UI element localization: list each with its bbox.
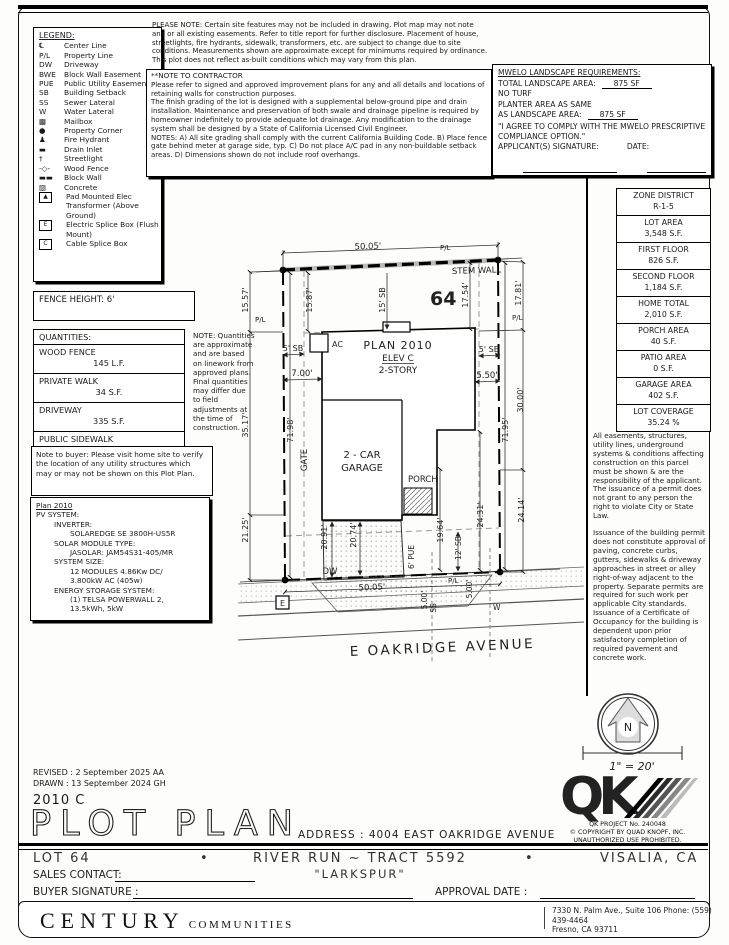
legend-title: LEGEND: <box>39 31 159 40</box>
contractor-note-box: **NOTE TO CONTRACTOR Please refer to sig… <box>146 69 492 177</box>
zone-table-row: LOT COVERAGE35.24 % <box>617 405 710 431</box>
mwelo-signature-label: APPLICANT(S) SIGNATURE: <box>498 142 599 153</box>
dim-top-width: 50.05' <box>354 242 381 253</box>
dim-5-50: 5.50' <box>476 371 497 381</box>
pv-line: 3.800kW AC (405w) <box>36 576 204 585</box>
pv-line: JASOLAR: JAM54S31-405/MR <box>36 548 204 557</box>
contractor-note-p2: The finish grading of the lot is designe… <box>151 98 487 133</box>
qk-copyright: © COPYRIGHT BY QUAD KNOPF, INC. <box>545 829 710 837</box>
mwelo-signature-lines <box>498 162 706 173</box>
dim-5-sb-left: 5' SB <box>283 344 303 353</box>
legend-item: ▬Drain Inlet <box>39 145 159 154</box>
plan-story: 2-STORY <box>379 366 418 376</box>
garage-label-1: 2 - CAR <box>343 450 380 461</box>
pv-line: 12 MODULES 4.86Kw DC/ <box>36 567 204 576</box>
right-property-line <box>498 260 500 572</box>
dim-71-98: 71.98' <box>286 417 295 442</box>
legend-item: -◇-Wood Fence <box>39 164 159 173</box>
dim-5-00-a: 5.00' <box>420 591 429 610</box>
mwelo-total-value: 875 SF <box>602 79 652 89</box>
approval-date-label: APPROVAL DATE : <box>435 886 527 898</box>
dim-17-54: 17.54' <box>461 282 470 307</box>
mwelo-signature-row: APPLICANT(S) SIGNATURE: DATE: <box>498 142 706 153</box>
legend-item: EElectric Splice Box (Flush Mount) <box>39 220 159 239</box>
mwelo-date-label: DATE: <box>627 142 649 153</box>
please-note: PLEASE NOTE: Certain site features may n… <box>152 21 488 65</box>
ac-label: AC <box>332 340 343 349</box>
pl-label-left: P/L <box>255 316 266 324</box>
footer-divider <box>544 907 545 929</box>
bullet-separator: • <box>200 851 210 866</box>
left-property-line <box>283 270 285 580</box>
pl-label-right: P/L <box>512 314 523 322</box>
pv-line: (1) TELSA POWERWALL 2, <box>36 595 204 604</box>
sales-contact-label: SALES CONTACT: <box>33 869 122 881</box>
revised-line: REVISED : 2 September 2025 AA <box>33 768 166 779</box>
plan-elev: ELEV C <box>382 354 414 364</box>
model-name: "LARKSPUR" <box>270 867 450 881</box>
garage-label-2: GARAGE <box>341 463 383 474</box>
pl-label-bottom: P/L <box>448 577 459 585</box>
fire-hydrant-icon: ♟ <box>39 135 64 144</box>
sewer-lateral-label: SS <box>429 603 438 613</box>
electric-splice-icon: E <box>39 220 52 231</box>
dim-71-95: 71.95' <box>501 417 510 442</box>
sewer-abbr: SS <box>39 98 64 107</box>
street-and-sidewalk <box>238 567 584 640</box>
city-label: VISALIA, CA <box>600 851 698 866</box>
dim-12-sb: 12' SB <box>454 536 463 560</box>
contractor-note-title: **NOTE TO CONTRACTOR <box>151 72 487 81</box>
pv-line: SYSTEM SIZE: <box>36 557 204 566</box>
mid-rule-thick <box>18 843 708 846</box>
lot-number: 64 <box>430 288 456 310</box>
dim-24-31: 24.31' <box>476 502 485 527</box>
dim-bottom-width: 50.05' <box>358 583 385 594</box>
quantities-row: DRIVEWAY335 S.F. <box>34 403 184 432</box>
porch-slab <box>404 488 432 514</box>
zone-table-row: HOME TOTAL2,010 S.F. <box>617 297 710 324</box>
legend-item: P/LProperty Line <box>39 51 159 60</box>
pue-abbr: PUE <box>39 79 64 88</box>
legend-item: ♟Fire Hydrant <box>39 135 159 144</box>
approval-date-line <box>540 898 695 899</box>
legend-item: ▩Mailbox <box>39 117 159 126</box>
electric-splice-label: E <box>280 599 285 608</box>
quantities-row: PRIVATE WALK34 S.F. <box>34 374 184 403</box>
legend-item: ▲Pad Mounted Elec Transformer (Above Gro… <box>39 192 159 220</box>
dim-7-00: 7.00' <box>291 369 312 379</box>
mwelo-quote: "I AGREE TO COMPLY WITH THE MWELO PRESCR… <box>498 122 706 141</box>
transformer-icon: ▲ <box>39 192 52 203</box>
contractor-note-p1: Please refer to signed and approved impr… <box>151 81 487 99</box>
mailbox-icon: ▩ <box>39 117 64 126</box>
footer-address: 7330 N. Palm Ave., Suite 106 Phone: (559… <box>552 906 729 935</box>
legend-item: ●Property Corner <box>39 126 159 135</box>
buyer-note-box: Note to buyer: Please visit home site to… <box>31 446 213 496</box>
concrete-icon: ▨ <box>39 183 64 192</box>
legend-item: †Streetlight <box>39 154 159 163</box>
pv-line: 13.5kWh, 5kW <box>36 604 204 613</box>
mwelo-planter-row: AS LANDSCAPE AREA:875 SF <box>498 110 706 121</box>
footer-address-line1: 7330 N. Palm Ave., Suite 106 Phone: (559… <box>552 906 729 925</box>
qk-project-number: QK PROJECT No. 240048 <box>545 821 710 829</box>
pl-label-top: P/L <box>440 244 451 252</box>
dim-5-sb-right: 5' SB <box>479 345 499 354</box>
qk-credits: QK PROJECT No. 240048 © COPYRIGHT BY QUA… <box>545 821 710 846</box>
porch-label: PORCH <box>408 475 438 485</box>
mwelo-total-row: TOTAL LANDSCAPE AREA:875 SF <box>498 79 706 90</box>
legend-item: ▨Concrete <box>39 183 159 192</box>
date-line <box>647 162 706 173</box>
century-communities-logo: CENTURY COMMUNITIES <box>40 908 294 934</box>
pv-line: ENERGY STORAGE SYSTEM: <box>36 586 204 595</box>
mid-rule-thin <box>18 849 708 850</box>
dim-20-74: 20.74' <box>349 522 358 547</box>
legend-item: DWDriveway <box>39 60 159 69</box>
quantities-row: WOOD FENCE145 L.F. <box>34 345 184 374</box>
pv-line: INVERTER: <box>36 520 204 529</box>
fence-height-box: FENCE HEIGHT: 6' <box>33 291 195 321</box>
legend-item: BWEBlock Wall Easement <box>39 70 159 79</box>
dim-19-64: 19.64' <box>436 517 445 542</box>
dim-30-00: 30.00' <box>516 387 525 412</box>
dim-5-00-b: 5.00' <box>465 580 474 599</box>
contractor-note-p3: NOTES: A) All site grading shall comply … <box>151 134 487 160</box>
property-line-symbol: P/L <box>39 51 64 60</box>
quantities-title: QUANTITIES: <box>34 330 184 345</box>
footer-address-line2: Fresno, CA 93711 <box>552 925 729 935</box>
dim-15-57: 15.57' <box>241 287 250 312</box>
water-abbr: W <box>39 107 64 116</box>
legend-box: LEGEND: ℄Center Line P/LProperty Line DW… <box>33 27 162 282</box>
qk-logo: QK <box>558 766 698 822</box>
streetlight-icon: † <box>39 154 64 163</box>
street-name: E OAKRIDGE AVENUE <box>349 636 535 660</box>
legend-item: PUEPublic Utility Easement <box>39 79 159 88</box>
top-rule-thick <box>18 5 708 9</box>
zone-table-row: GARAGE AREA402 S.F. <box>617 378 710 405</box>
mwelo-planter-value: 875 SF <box>588 110 638 120</box>
sheet-title: PLOT PLAN <box>30 804 302 844</box>
mwelo-title: MWELO LANDSCAPE REQUIREMENTS: <box>498 68 706 79</box>
centerline-symbol: ℄ <box>39 41 64 50</box>
zone-table-row: SECOND FLOOR1,184 S.F. <box>617 270 710 297</box>
mwelo-no-turf: NO TURF <box>498 89 706 100</box>
legend-item: CCable Splice Box <box>39 239 159 250</box>
dim-20-91: 20.91' <box>320 524 329 549</box>
dim-21-25: 21.25' <box>241 517 250 542</box>
buyer-signature-label: BUYER SIGNATURE : <box>33 886 139 898</box>
block-wall-easement-abbr: BWE <box>39 70 64 79</box>
stem-wall-label: STEM WALL <box>452 265 502 277</box>
legend-item: SSSewer Lateral <box>39 98 159 107</box>
mwelo-box: MWELO LANDSCAPE REQUIREMENTS: TOTAL LAND… <box>492 64 712 176</box>
zone-table-row: PORCH AREA40 S.F. <box>617 324 710 351</box>
dw-label: DW <box>323 567 339 577</box>
driveway-abbr: DW <box>39 60 64 69</box>
property-corner-icon: ● <box>39 126 64 135</box>
drawn-line: DRAWN : 13 September 2024 GH <box>33 779 166 790</box>
legend-item: ℄Center Line <box>39 41 159 50</box>
zone-table-row: FIRST FLOOR826 S.F. <box>617 243 710 270</box>
plan-name: PLAN 2010 <box>363 339 432 352</box>
sales-contact-line <box>115 881 255 882</box>
zone-table-row: LOT AREA3,548 S.F. <box>617 216 710 243</box>
wood-fence-icon: -◇- <box>39 164 64 173</box>
communities-wordmark: COMMUNITIES <box>189 919 294 931</box>
lot-label: LOT 64 <box>33 851 91 866</box>
mwelo-planter-line1: PLANTER AREA AS SAME <box>498 100 706 111</box>
dim-17-81: 17.81' <box>514 280 523 305</box>
dim-35-17: 35.17' <box>241 412 250 437</box>
pv-line: SOLAREDGE SE 3800H-US5R <box>36 529 204 538</box>
signature-line <box>523 162 617 173</box>
water-lateral-label: W <box>493 603 501 612</box>
gate-label: GATE <box>300 449 310 471</box>
dim-15-87: 15.87' <box>305 287 314 312</box>
zone-table-row: ZONE DISTRICTR-1-5 <box>617 189 710 216</box>
legend-item: SBBuilding Setback <box>39 88 159 97</box>
legend-item: ▬▬Block Wall <box>39 173 159 182</box>
block-wall-icon: ▬▬ <box>39 173 64 182</box>
dim-24-14: 24.14' <box>517 497 526 522</box>
top-rule-thin <box>18 12 708 13</box>
pue-label: 6' PUE <box>407 545 416 569</box>
century-wordmark: CENTURY <box>40 908 185 933</box>
cable-splice-icon: C <box>39 239 52 250</box>
zone-table-row: PATIO AREA0 S.F. <box>617 351 710 378</box>
legend-item: WWater Lateral <box>39 107 159 116</box>
quantities-table: QUANTITIES: WOOD FENCE145 L.F. PRIVATE W… <box>33 329 185 461</box>
plot-plan-sheet: LEGEND: ℄Center Line P/LProperty Line DW… <box>0 0 729 945</box>
revision-block: REVISED : 2 September 2025 AA DRAWN : 13… <box>33 768 166 789</box>
buyer-signature-line <box>133 898 413 899</box>
setback-abbr: SB <box>39 88 64 97</box>
bullet-separator: • <box>525 851 535 866</box>
drain-inlet-icon: ▬ <box>39 145 64 154</box>
pv-line: PV SYSTEM: <box>36 510 204 519</box>
zone-table: ZONE DISTRICTR-1-5 LOT AREA3,548 S.F. FI… <box>616 188 711 432</box>
tract-label: RIVER RUN ~ TRACT 5592 <box>240 851 480 866</box>
north-letter: N <box>624 721 632 734</box>
address-line: ADDRESS : 4004 EAST OAKRIDGE AVENUE <box>298 829 555 841</box>
pv-system-box: Plan 2010 PV SYSTEM: INVERTER: SOLAREDGE… <box>30 497 210 621</box>
pv-plan-title: Plan 2010 <box>36 501 204 510</box>
pv-line: SOLAR MODULE TYPE: <box>36 539 204 548</box>
dim-15-sb: 15' SB <box>378 287 387 313</box>
ac-pad <box>310 334 328 352</box>
site-plan-drawing: E 50.05' P/L STEM WALL 64 15.57' P/L 15.… <box>200 235 615 705</box>
